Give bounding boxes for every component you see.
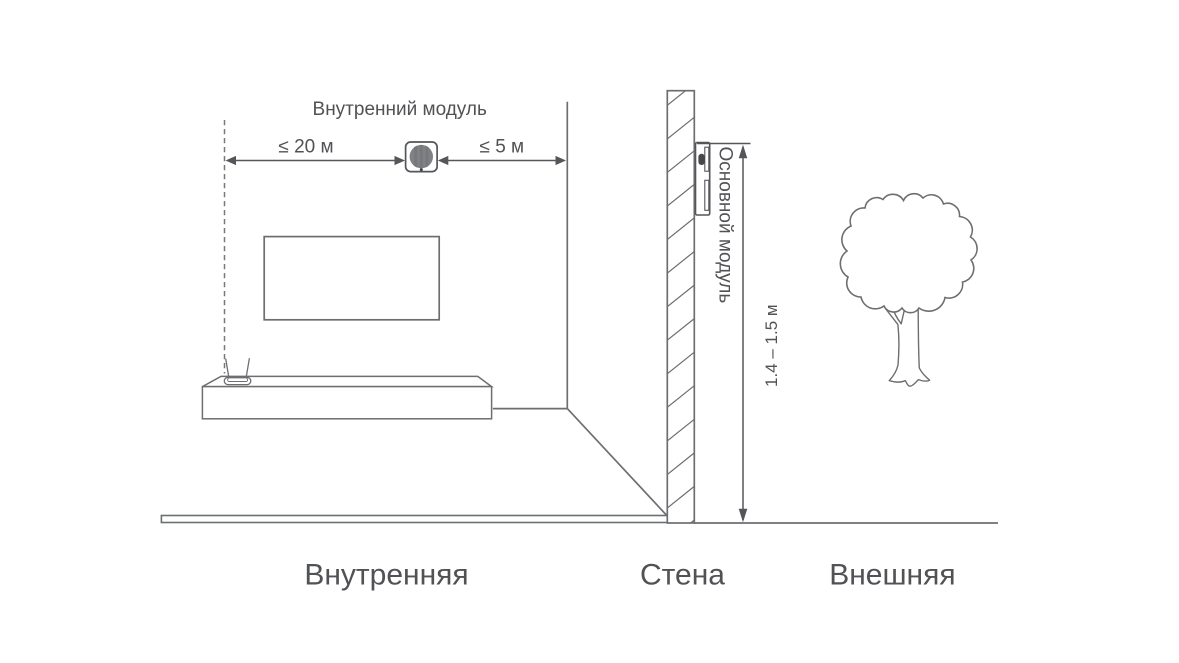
svg-text:Стена: Стена: [640, 559, 725, 592]
svg-text:Основной модуль: Основной модуль: [715, 147, 736, 304]
svg-text:≤ 20 м: ≤ 20 м: [278, 136, 333, 157]
svg-text:Внешняя: Внешняя: [829, 559, 955, 592]
svg-text:Внутренняя: Внутренняя: [304, 559, 468, 592]
svg-text:1.4 – 1.5 м: 1.4 – 1.5 м: [762, 304, 781, 387]
svg-text:≤ 5 м: ≤ 5 м: [479, 136, 524, 157]
svg-text:Внутренний модуль: Внутренний модуль: [313, 99, 487, 120]
